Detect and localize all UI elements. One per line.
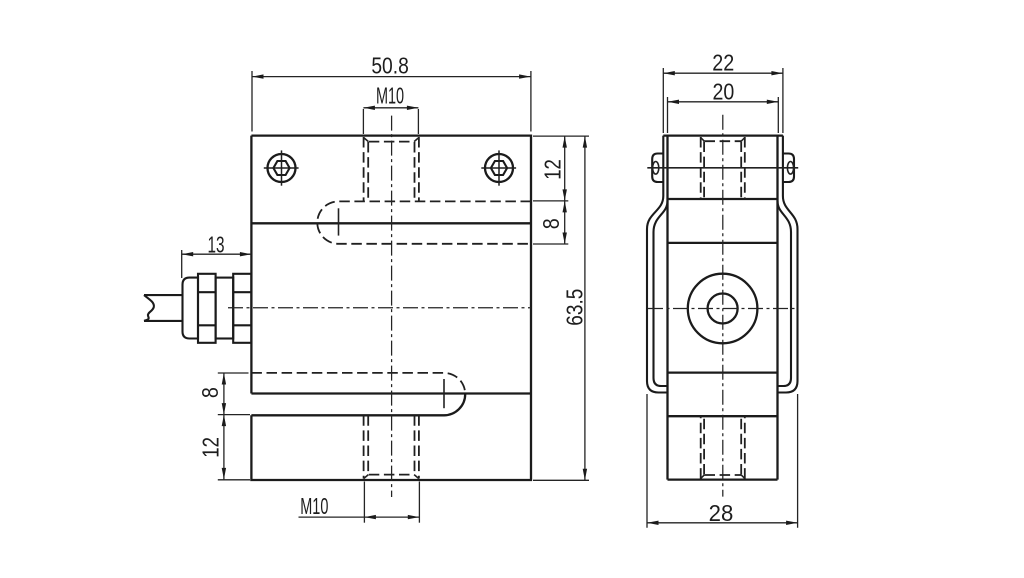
svg-text:22: 22	[712, 49, 734, 75]
svg-text:13: 13	[208, 231, 225, 257]
svg-text:8: 8	[538, 218, 564, 229]
svg-text:12: 12	[540, 159, 566, 180]
svg-text:63.5: 63.5	[562, 289, 588, 326]
svg-text:M10: M10	[300, 493, 328, 519]
svg-text:12: 12	[198, 437, 224, 458]
svg-text:8: 8	[197, 387, 223, 398]
svg-text:M10: M10	[376, 82, 404, 108]
svg-text:28: 28	[709, 500, 734, 526]
svg-text:20: 20	[713, 78, 735, 104]
svg-text:50.8: 50.8	[371, 52, 409, 78]
